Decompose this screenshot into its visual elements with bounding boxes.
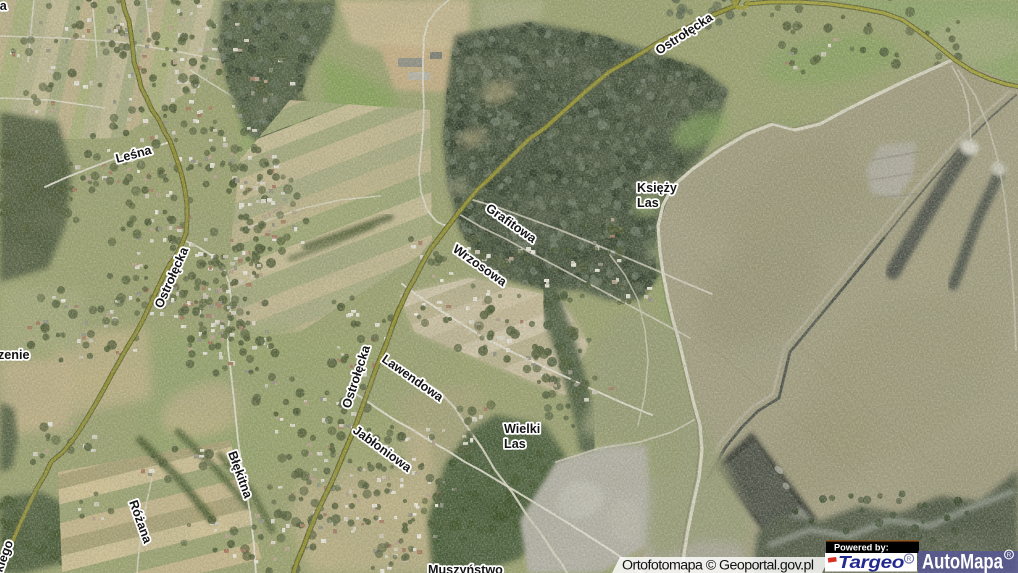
svg-text:Ortofotomapa © Geoportal.gov.p: Ortofotomapa © Geoportal.gov.pl	[622, 558, 814, 573]
svg-text:R: R	[1007, 552, 1012, 559]
svg-text:Powered by:: Powered by:	[834, 542, 889, 552]
svg-text:Targeo: Targeo	[838, 552, 905, 572]
svg-text:na: na	[0, 0, 8, 13]
svg-text:zenie: zenie	[0, 348, 30, 362]
svg-text:Wielki: Wielki	[504, 422, 540, 436]
svg-text:Las: Las	[637, 196, 659, 210]
svg-text:Muszyństwo: Muszyństwo	[428, 563, 503, 573]
svg-text:Księży: Księży	[637, 181, 677, 195]
svg-text:AutoMapa: AutoMapa	[922, 551, 1003, 573]
svg-text:R: R	[907, 556, 912, 563]
svg-text:Las: Las	[504, 437, 526, 451]
